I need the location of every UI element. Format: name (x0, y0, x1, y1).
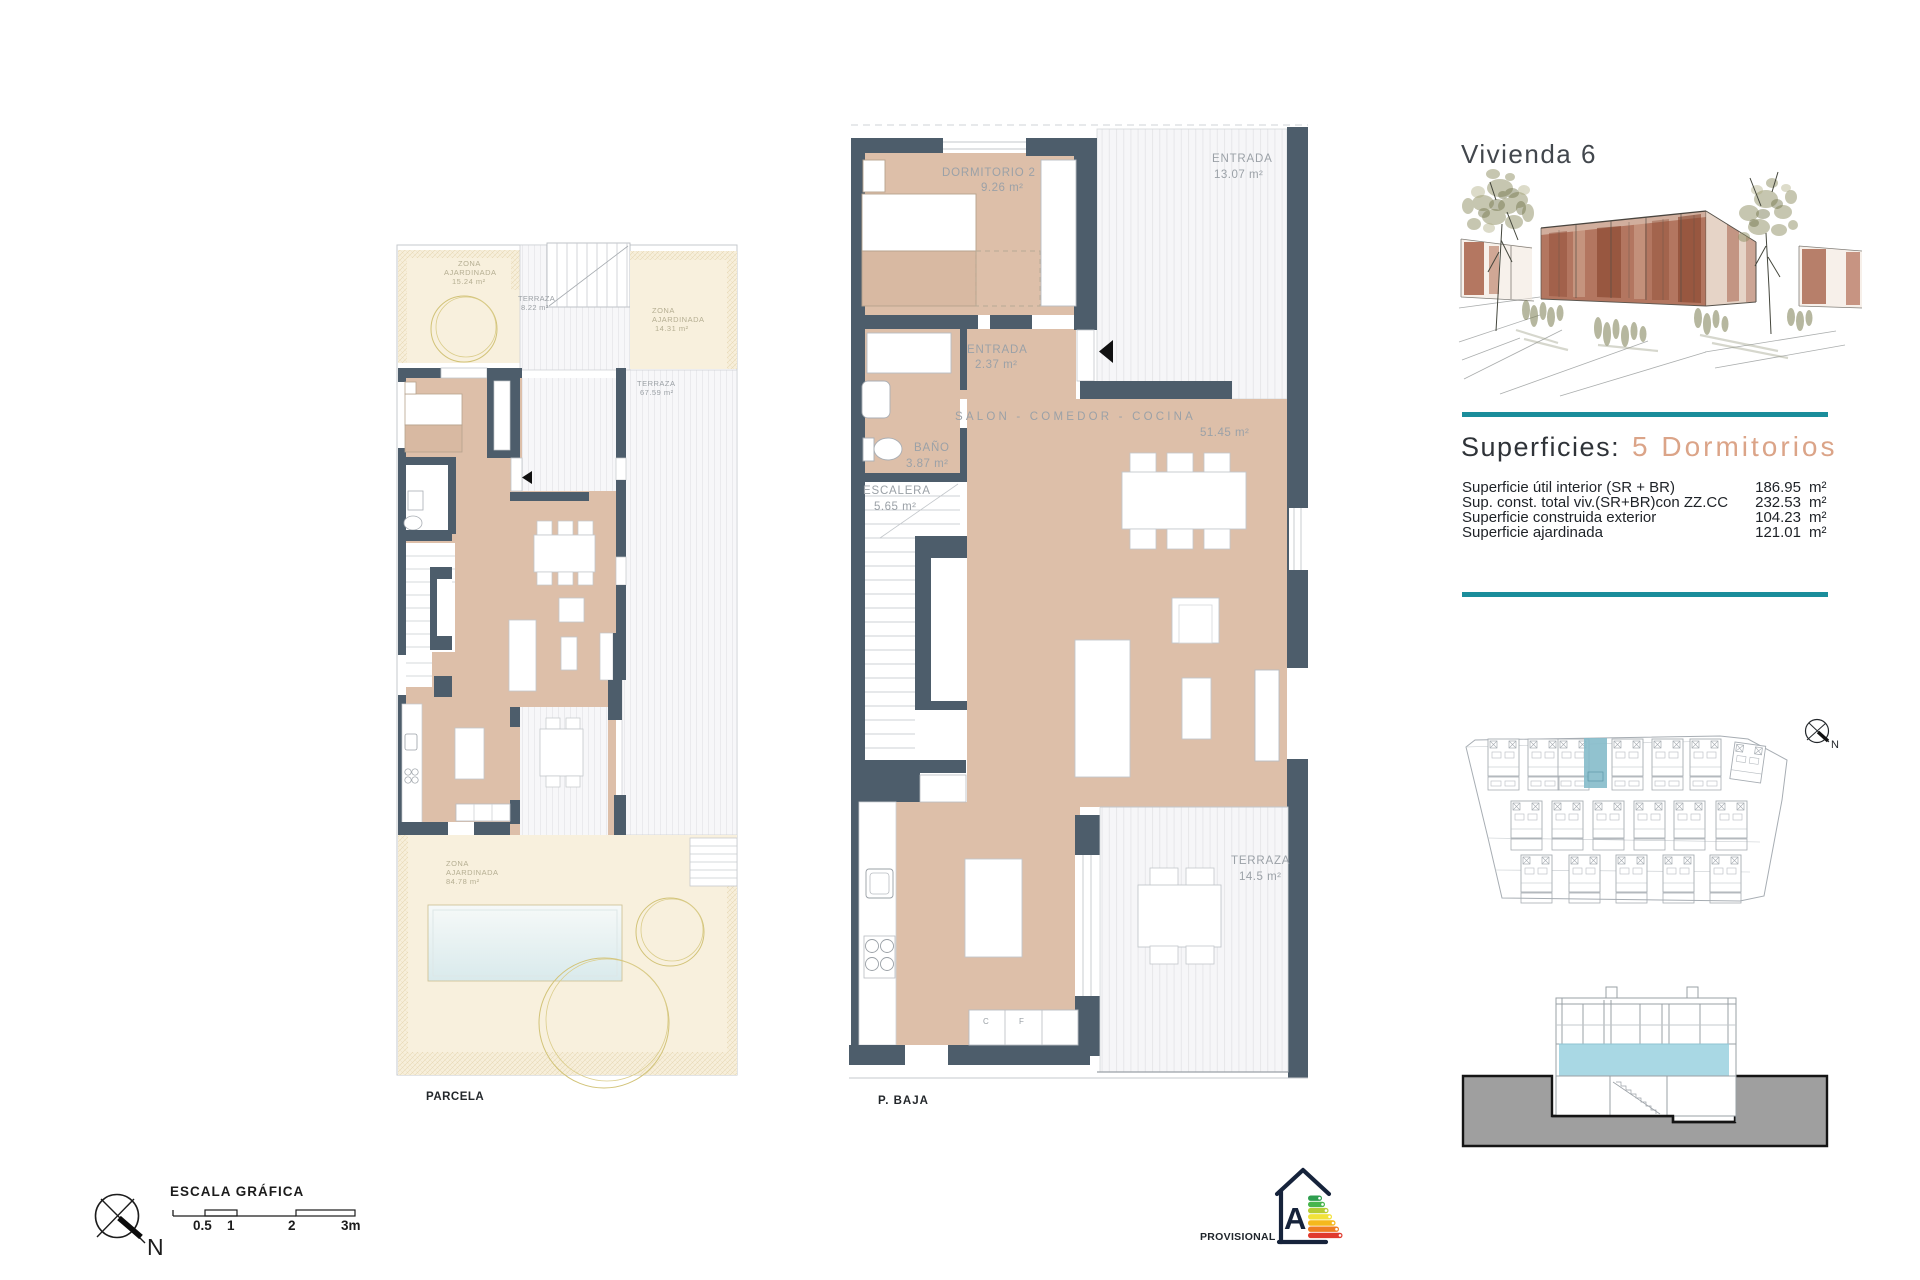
svg-text:ESCALERA: ESCALERA (863, 485, 931, 497)
svg-text:15.24 m²: 15.24 m² (452, 277, 486, 286)
svg-text:Vivienda 6: Vivienda 6 (1461, 139, 1597, 169)
svg-text:ZONA: ZONA (458, 259, 481, 268)
svg-text:8.22 m²: 8.22 m² (521, 303, 549, 312)
svg-text:ENTRADA: ENTRADA (1212, 153, 1273, 165)
svg-text:ZONA: ZONA (652, 306, 675, 315)
svg-text:3m: 3m (341, 1218, 361, 1233)
svg-text:AJARDINADA: AJARDINADA (652, 315, 705, 324)
svg-text:14.5 m²: 14.5 m² (1239, 871, 1282, 883)
svg-text:2: 2 (288, 1218, 296, 1233)
svg-text:ESCALA GRÁFICA: ESCALA GRÁFICA (170, 1184, 304, 1199)
svg-text:9.26 m²: 9.26 m² (981, 182, 1024, 194)
svg-text:TERRAZA: TERRAZA (518, 294, 555, 303)
svg-text:F: F (1019, 1017, 1024, 1026)
svg-text:51.45 m²: 51.45 m² (1200, 427, 1249, 439)
svg-text:PARCELA: PARCELA (426, 1091, 484, 1103)
svg-text:14.31 m²: 14.31 m² (655, 324, 689, 333)
svg-text:AJARDINADA: AJARDINADA (446, 868, 499, 877)
svg-text:ENTRADA: ENTRADA (967, 344, 1028, 356)
svg-text:C: C (983, 1017, 989, 1026)
svg-text:P. BAJA: P. BAJA (878, 1095, 929, 1107)
svg-text:2.37 m²: 2.37 m² (975, 359, 1018, 371)
svg-text:5 Dormitorios: 5 Dormitorios (1632, 431, 1837, 462)
svg-text:5.65 m²: 5.65 m² (874, 501, 917, 513)
svg-text:3.87 m²: 3.87 m² (906, 458, 949, 470)
svg-text:DORMITORIO 2: DORMITORIO 2 (942, 167, 1036, 179)
svg-text:TERRAZA: TERRAZA (637, 379, 676, 388)
svg-text:13.07 m²: 13.07 m² (1214, 169, 1263, 181)
svg-text:BAÑO: BAÑO (914, 441, 950, 454)
svg-text:121.01: 121.01 (1755, 524, 1801, 541)
svg-text:PROVISIONAL: PROVISIONAL (1200, 1231, 1276, 1243)
svg-text:Superficies:: Superficies: (1461, 432, 1620, 462)
svg-text:84.78 m²: 84.78 m² (446, 877, 480, 886)
svg-text:N: N (147, 1234, 164, 1260)
svg-text:m²: m² (1809, 524, 1827, 541)
svg-text:A: A (1284, 1201, 1306, 1236)
svg-text:Superficie ajardinada: Superficie ajardinada (1462, 524, 1604, 541)
svg-text:67.59 m²: 67.59 m² (640, 388, 674, 397)
svg-text:TERRAZA: TERRAZA (1231, 855, 1290, 867)
svg-text:SALON - COMEDOR - COCINA: SALON - COMEDOR - COCINA (955, 411, 1196, 423)
svg-text:ZONA: ZONA (446, 859, 469, 868)
svg-text:AJARDINADA: AJARDINADA (444, 268, 497, 277)
svg-text:1: 1 (227, 1218, 235, 1233)
svg-text:0.5: 0.5 (193, 1218, 212, 1233)
svg-text:N: N (1831, 739, 1839, 751)
